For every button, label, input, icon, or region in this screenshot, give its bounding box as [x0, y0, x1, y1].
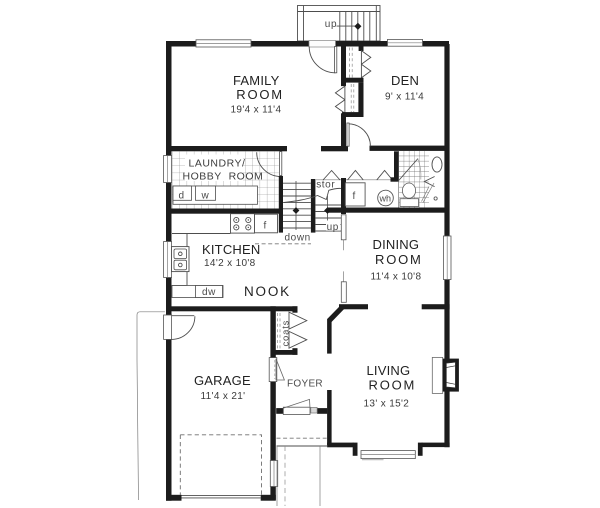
svg-text:ROOM: ROOM [375, 252, 423, 267]
svg-text:GARAGE: GARAGE [194, 373, 251, 388]
svg-text:down: down [285, 233, 311, 244]
svg-text:FAMILY: FAMILY [233, 73, 280, 88]
svg-text:wh: wh [379, 194, 392, 204]
svg-text:d: d [179, 190, 185, 201]
svg-text:coats: coats [281, 320, 292, 347]
svg-text:13' x 15'2: 13' x 15'2 [364, 399, 410, 410]
svg-text:LAUNDRY/: LAUNDRY/ [189, 158, 246, 170]
svg-text:w: w [201, 190, 210, 201]
svg-text:LIVING: LIVING [367, 363, 411, 378]
svg-text:19'4 x 11'4: 19'4 x 11'4 [231, 105, 282, 116]
svg-text:f: f [264, 221, 267, 232]
svg-text:NOOK: NOOK [244, 284, 291, 299]
svg-text:dw: dw [202, 287, 216, 298]
svg-text:14'2 x 10'8: 14'2 x 10'8 [204, 258, 256, 269]
svg-text:up: up [327, 222, 339, 233]
svg-text:DINING: DINING [373, 237, 420, 252]
svg-text:HOBBY ROOM: HOBBY ROOM [183, 171, 264, 183]
svg-text:DEN: DEN [391, 73, 419, 88]
svg-text:11'4 x 10'8: 11'4 x 10'8 [371, 272, 422, 283]
svg-text:ROOM: ROOM [236, 87, 284, 102]
svg-text:FOYER: FOYER [287, 379, 323, 390]
svg-text:f: f [353, 191, 356, 202]
svg-text:ROOM: ROOM [369, 378, 417, 393]
svg-text:up: up [325, 19, 337, 30]
svg-text:11'4 x 21': 11'4 x 21' [201, 391, 246, 402]
svg-text:KITCHEN: KITCHEN [202, 242, 260, 257]
svg-text:9' x 11'4: 9' x 11'4 [385, 92, 424, 103]
